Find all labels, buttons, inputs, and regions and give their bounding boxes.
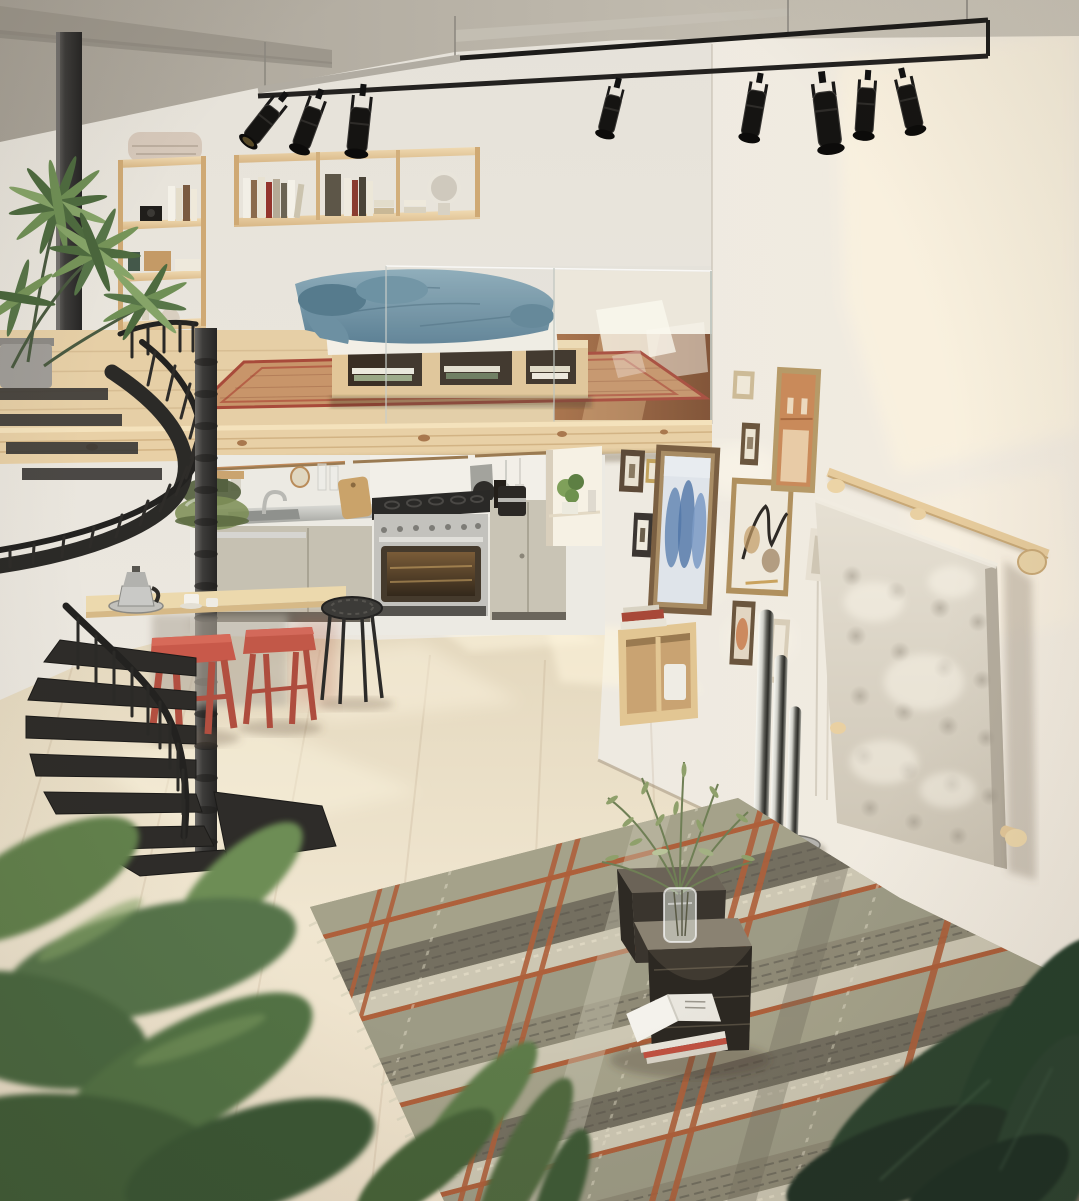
sieve	[291, 467, 309, 487]
shelf-object	[664, 664, 686, 700]
cup	[206, 598, 218, 607]
oven-handle	[379, 537, 483, 542]
picture-frame	[632, 513, 653, 558]
kitchen-niche	[546, 446, 602, 546]
loft-photo: Loft apartment interior with mezzanine b…	[0, 0, 1079, 1201]
pillow	[298, 284, 366, 316]
picture-frame-orange-arch	[771, 367, 821, 493]
picture-frame	[732, 370, 754, 399]
wall-peg	[910, 508, 926, 520]
picture-frame	[729, 600, 755, 665]
picture-frame	[619, 449, 645, 492]
radio	[325, 174, 341, 216]
picture-frame	[740, 423, 760, 466]
glass-railing	[386, 266, 712, 424]
cutting-board	[337, 476, 372, 520]
niche-bottle	[588, 490, 596, 512]
wall-peg	[830, 722, 846, 734]
range-cooker	[372, 490, 490, 616]
picture-frame-blue-figures	[648, 444, 721, 615]
table-mirror	[429, 173, 459, 203]
wall-peg-end	[1018, 550, 1046, 574]
glass-vase	[664, 888, 696, 942]
picture-frame-abstract	[726, 477, 794, 596]
scene-canvas: Loft apartment interior with mezzanine b…	[0, 0, 1079, 1201]
wall-peg	[827, 479, 845, 493]
